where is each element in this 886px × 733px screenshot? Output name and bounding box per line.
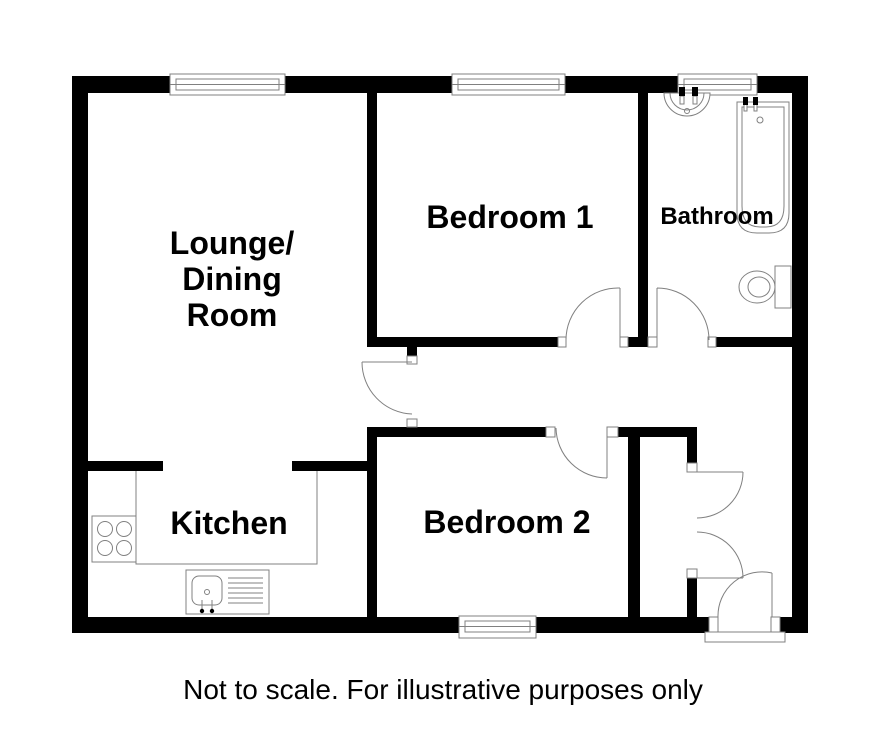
kitchen-sink-icon — [186, 570, 269, 614]
door-jambs — [407, 337, 780, 633]
wall-right — [792, 76, 808, 633]
kitchen-label: Kitchen — [170, 505, 287, 541]
disclaimer-text: Not to scale. For illustrative purposes … — [183, 674, 703, 706]
wall-bedroom2-closet — [628, 437, 640, 617]
front-door-threshold — [705, 632, 785, 642]
jamb — [558, 337, 566, 347]
wall-hall-door-stub — [407, 347, 417, 356]
door-arc-icon-closet-upper — [697, 472, 743, 518]
wall-bedroom2-top-left — [367, 427, 546, 437]
wall-bedroom1-bottom — [367, 337, 558, 347]
floorplan-drawing — [0, 0, 886, 733]
bathroom-label: Bathroom — [660, 199, 773, 235]
wall-kitchen-right — [292, 461, 367, 471]
jamb — [687, 569, 697, 578]
door-arc-icon-bedroom1 — [566, 288, 620, 340]
lounge-label-line2: Dining — [170, 261, 294, 297]
kitchen-fixtures — [92, 471, 317, 614]
wall-top-c — [565, 76, 678, 93]
toilet-icon — [739, 266, 791, 308]
wall-bottom-a — [72, 617, 460, 633]
hob-icon — [92, 516, 136, 562]
window-icon-bathroom — [678, 74, 757, 95]
wall-bedroom2-left — [367, 437, 377, 617]
lounge-label-line1: Lounge/ — [170, 225, 294, 261]
lounge-label-line3: Room — [170, 297, 294, 333]
door-arc-icon-bedroom2 — [556, 428, 607, 478]
wall-bathroom-bottom — [716, 337, 792, 347]
bedroom1-label: Bedroom 1 — [426, 199, 593, 235]
wall-closet-front-top — [687, 437, 697, 463]
door-arc-icon-front-door — [718, 572, 772, 617]
wall-bedroom1-bottom-stub — [628, 337, 648, 347]
jamb — [607, 427, 618, 437]
door-arc-icon-hallway — [362, 362, 412, 414]
windows — [170, 74, 757, 638]
window-icon-bedroom2 — [459, 616, 536, 638]
window-icon-lounge — [170, 74, 285, 95]
bedroom2-label: Bedroom 2 — [423, 504, 590, 540]
wall-bottom-b — [535, 617, 710, 633]
jamb — [620, 337, 628, 347]
window-icon-bedroom1 — [452, 74, 565, 95]
walls — [72, 76, 808, 633]
wall-bedroom1-bathroom — [638, 93, 648, 337]
jamb — [546, 427, 555, 437]
wall-closet-front-bottom — [687, 578, 697, 617]
wall-bottom-c — [780, 617, 808, 633]
floorplan-canvas: Lounge/ Dining Room Bedroom 1 Bathroom K… — [0, 0, 886, 733]
jamb — [709, 617, 718, 633]
wall-left — [72, 76, 88, 633]
wall-lounge-bedroom1 — [367, 93, 377, 347]
jamb — [687, 463, 697, 472]
bathroom-fixtures — [664, 87, 791, 308]
wall-top-b — [285, 76, 452, 93]
door-arc-icon-closet-lower — [697, 532, 743, 578]
lounge-label: Lounge/ Dining Room — [170, 225, 294, 333]
door-arc-icon-bathroom — [657, 288, 709, 340]
jamb — [407, 419, 417, 427]
wall-bedroom2-top-right — [618, 427, 697, 437]
jamb — [771, 617, 780, 633]
jamb — [648, 337, 657, 347]
jamb — [407, 356, 417, 364]
wall-kitchen-left — [88, 461, 163, 471]
